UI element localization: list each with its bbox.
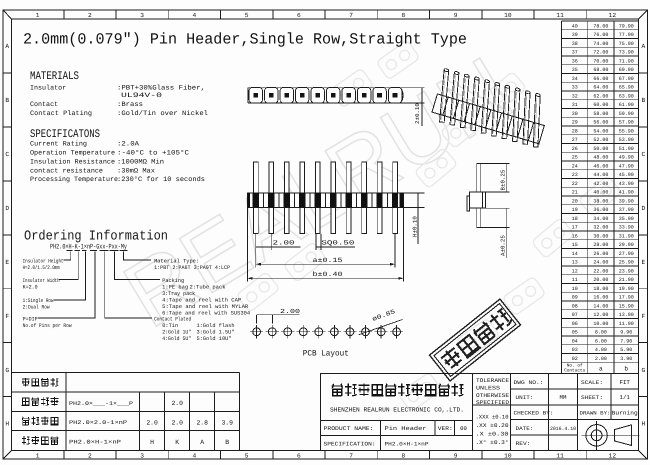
svg-text:6.00: 6.00 [595,338,607,344]
svg-text:SCALE:: SCALE: [581,380,603,386]
svg-text:25.90: 25.90 [619,260,634,266]
svg-text:5:Gold 10U": 5:Gold 10U" [197,336,232,342]
svg-text:6: 6 [297,453,301,460]
svg-text:K=2.0: K=2.0 [23,284,38,290]
svg-text:38: 38 [572,41,578,47]
svg-text:19: 19 [572,207,578,213]
svg-text:49.90: 49.90 [619,155,634,161]
svg-text:36: 36 [572,58,578,64]
svg-text:UNIT:: UNIT: [516,395,534,401]
svg-text:MM: MM [560,394,567,401]
svg-text:17: 17 [572,225,578,231]
svg-text:32: 32 [572,93,578,99]
svg-text:45.90: 45.90 [619,172,634,178]
svg-text:52.00: 52.00 [593,137,608,143]
svg-text:B: B [641,97,645,104]
svg-text:2.00: 2.00 [273,240,295,247]
svg-text:PH2.0×2.0-1×nP: PH2.0×2.0-1×nP [69,419,128,426]
svg-text:76.00: 76.00 [593,32,608,38]
svg-text:1: 1 [36,12,40,19]
svg-text:66.00: 66.00 [593,76,608,82]
svg-text:C: C [641,151,645,158]
svg-text:39.90: 39.90 [619,198,634,204]
svg-text:3.90: 3.90 [620,356,632,362]
svg-text:MATERIALS: MATERIALS [30,70,79,83]
svg-text:21.90: 21.90 [619,277,634,283]
svg-text:9: 9 [454,12,458,19]
svg-text:37: 37 [572,50,578,56]
svg-text:63.90: 63.90 [619,93,634,99]
svg-text:A: A [641,43,645,50]
svg-text:13: 13 [572,260,578,266]
svg-text:48.00: 48.00 [593,155,608,161]
svg-text:2:Gold 1U": 2:Gold 1U" [162,330,191,336]
svg-text:34.00: 34.00 [593,216,608,222]
svg-text:4:Gold 5U": 4:Gold 5U" [162,336,191,342]
svg-text:16: 16 [572,233,578,239]
svg-text:7.90: 7.90 [620,338,632,344]
svg-text:A: A [5,43,9,50]
svg-text:a: a [599,366,603,373]
svg-text:DATE:: DATE: [516,426,534,432]
svg-text:00: 00 [460,425,467,432]
svg-text:Contact: Contact [30,101,58,109]
svg-text:PH2.0×H-1×nP: PH2.0×H-1×nP [69,438,122,445]
svg-text:2.00: 2.00 [280,308,300,315]
svg-text:11: 11 [556,12,564,19]
svg-text:11: 11 [572,277,578,283]
svg-text:38.00: 38.00 [593,198,608,204]
svg-text:SPECIFIED: SPECIFIED [476,399,510,406]
svg-text:22.00: 22.00 [593,268,608,274]
svg-text:contact resistance: contact resistance [30,167,103,175]
svg-text:5: 5 [245,12,249,19]
svg-text:43.90: 43.90 [619,181,634,187]
svg-text:02: 02 [572,356,578,362]
svg-text:FIT: FIT [619,379,630,386]
svg-text:34: 34 [572,76,578,82]
svg-text:0:Tin: 0:Tin [162,323,178,329]
svg-text:1:PBT 2:PA6T 3:PA9T 4:LCP: 1:PBT 2:PA6T 3:PA9T 4:LCP [154,265,230,271]
svg-text:11.90: 11.90 [619,321,634,327]
svg-text:SPECIFICATONS: SPECIFICATONS [30,128,100,141]
svg-text:40.00: 40.00 [593,190,608,196]
svg-text:10: 10 [572,286,578,292]
svg-text:31.90: 31.90 [619,233,634,239]
svg-text:OTHERWISE: OTHERWISE [476,392,510,399]
svg-text:28: 28 [572,128,578,134]
svg-text:UNLESS: UNLESS [476,384,501,391]
svg-text:UL94V-0: UL94V-0 [121,92,162,100]
svg-text:.XXX ±0.10: .XXX ±0.10 [476,413,510,420]
svg-text:08: 08 [572,303,578,309]
svg-text:23: 23 [572,172,578,178]
svg-text:18.00: 18.00 [593,286,608,292]
svg-text:23.90: 23.90 [619,268,634,274]
svg-text:H±0.10: H±0.10 [412,216,419,237]
svg-text:E: E [641,259,645,266]
svg-text:7: 7 [349,453,353,460]
svg-text:8: 8 [402,12,406,19]
svg-text::Gold/Tin over Nickel: :Gold/Tin over Nickel [117,110,208,118]
svg-text:Contact Plating: Contact Plating [30,110,92,118]
svg-text:E: E [5,259,9,266]
svg-text:SPECIFICATION:: SPECIFICATION: [324,440,376,447]
svg-text:75.90: 75.90 [619,41,634,47]
svg-text:44.00: 44.00 [593,172,608,178]
svg-text::2.0A: :2.0A [117,141,140,149]
svg-text:6: 6 [297,12,301,19]
svg-text:20: 20 [572,198,578,204]
svg-text:REV:: REV: [516,441,531,447]
svg-text:14: 14 [572,251,578,257]
svg-text:72.00: 72.00 [593,50,608,56]
svg-text:62.00: 62.00 [593,93,608,99]
svg-text:G: G [5,367,9,374]
svg-text:2.00: 2.00 [595,356,607,362]
svg-text:2.0: 2.0 [146,420,158,427]
svg-text:2.0: 2.0 [171,400,183,407]
svg-text:VER:: VER: [438,425,453,432]
svg-text:12: 12 [609,453,617,460]
svg-text:PH2.0×H-1×nP: PH2.0×H-1×nP [385,441,429,447]
svg-text:40: 40 [572,23,578,29]
svg-text:57.90: 57.90 [619,120,634,126]
svg-text:25: 25 [572,155,578,161]
svg-text:35.90: 35.90 [619,216,634,222]
svg-text:Contacts: Contacts [564,369,585,374]
svg-text:18: 18 [572,216,578,222]
svg-text:No.of Pins per Row: No.of Pins per Row [23,323,73,329]
svg-text:1/1: 1/1 [619,394,630,401]
svg-text:16.00: 16.00 [593,295,608,301]
svg-text:9.90: 9.90 [620,330,632,336]
svg-text:12: 12 [572,268,578,274]
svg-text:5:Tape and reel with MYLAR: 5:Tape and reel with MYLAR [162,304,249,310]
svg-text:D: D [641,205,645,212]
svg-text:3: 3 [140,12,144,19]
svg-text:DWG NO.:: DWG NO.: [514,380,544,386]
svg-text:Burning: Burning [612,410,638,417]
svg-text:8: 8 [402,453,406,460]
svg-text:.XX ±0.20: .XX ±0.20 [476,422,510,429]
svg-text:Processing Temperature: Processing Temperature [30,176,118,184]
svg-text:3.9: 3.9 [221,420,233,427]
svg-text:Current Rating: Current Rating [30,141,87,149]
svg-text:Operation Temperature: Operation Temperature [30,150,115,158]
svg-text:78.00: 78.00 [593,23,608,29]
svg-text:Packing: Packing [162,278,184,284]
svg-text:8.00: 8.00 [595,330,607,336]
svg-text:55.90: 55.90 [619,128,634,134]
svg-text:C: C [5,151,9,158]
svg-text:60.00: 60.00 [593,102,608,108]
svg-text:10: 10 [504,12,512,19]
svg-text:Pin Header: Pin Header [385,425,427,432]
svg-text:61.90: 61.90 [619,102,634,108]
svg-text:1:Gold flash: 1:Gold flash [197,323,235,329]
svg-text:04: 04 [572,338,578,344]
svg-text:26: 26 [572,146,578,152]
svg-text:Ordering Information: Ordering Information [24,230,168,245]
svg-text:32.00: 32.00 [593,225,608,231]
svg-text:56.00: 56.00 [593,120,608,126]
svg-text:46.00: 46.00 [593,163,608,169]
svg-text:15: 15 [572,242,578,248]
svg-text:09: 09 [572,295,578,301]
svg-text:12.00: 12.00 [593,312,608,318]
svg-text:PCB Layout: PCB Layout [303,349,349,358]
svg-text:5: 5 [245,453,249,460]
svg-text:73.90: 73.90 [619,50,634,56]
svg-text:4:Tape and reel with CAP: 4:Tape and reel with CAP [162,297,241,303]
svg-text:17.90: 17.90 [619,295,634,301]
svg-text:2.0: 2.0 [171,420,183,427]
svg-text:SHEET:: SHEET: [581,395,603,401]
svg-text:H: H [150,439,154,446]
svg-text:PH2.0×___-1×___P: PH2.0×___-1×___P [69,400,134,407]
svg-text:53.90: 53.90 [619,137,634,143]
svg-text:33: 33 [572,85,578,91]
svg-text:A±0.25: A±0.25 [499,235,506,256]
svg-text:b±0.40: b±0.40 [313,271,343,278]
svg-text:33.90: 33.90 [619,225,634,231]
svg-text:77.90: 77.90 [619,32,634,38]
svg-text:Contact Plated: Contact Plated [154,317,191,323]
svg-text:b: b [624,366,628,373]
svg-text:54.00: 54.00 [593,128,608,134]
svg-text:4.00: 4.00 [595,347,607,353]
svg-text:2: 2 [88,12,92,19]
svg-text:22: 22 [572,181,578,187]
svg-text:69.90: 69.90 [619,67,634,73]
svg-text:2.0mm(0.079") Pin Header,Singl: 2.0mm(0.079") Pin Header,Single Row,Stra… [23,31,467,49]
svg-text:F: F [5,313,9,320]
svg-text:B: B [225,439,229,446]
svg-text:10.00: 10.00 [593,321,608,327]
svg-text::1000MΩ Min: :1000MΩ Min [117,159,164,167]
svg-text::Brass: :Brass [117,101,143,109]
svg-text:5.90: 5.90 [620,347,632,353]
svg-text:6:Tape and reel with SUS304: 6:Tape and reel with SUS304 [162,310,250,316]
svg-text:42.00: 42.00 [593,181,608,187]
svg-text:.X° ±0.3°: .X° ±0.3° [476,439,509,446]
svg-text:.X ±0.30: .X ±0.30 [476,430,510,437]
svg-text:58.00: 58.00 [593,111,608,117]
svg-text:Material Type:: Material Type: [154,259,199,265]
svg-text:1: 1 [36,453,40,460]
svg-text:Insulation Resistance: Insulation Resistance [30,159,115,167]
svg-text:29: 29 [572,120,578,126]
svg-text:7: 7 [349,12,353,19]
svg-text:28.00: 28.00 [593,242,608,248]
svg-text:B±0.25: B±0.25 [499,169,506,190]
svg-text:2.8: 2.8 [196,420,208,427]
svg-text:03: 03 [572,347,578,353]
svg-text::230°C for 10 seconds: :230°C for 10 seconds [117,176,205,184]
svg-text:G: G [641,367,645,374]
svg-text:39: 39 [572,32,578,38]
svg-text:1:Single Row: 1:Single Row [23,298,55,304]
svg-text:DRAWN BY:: DRAWN BY: [580,411,611,417]
svg-text:29.90: 29.90 [619,242,634,248]
svg-text:47.90: 47.90 [619,163,634,169]
svg-text:F: F [641,313,645,320]
svg-text:79.90: 79.90 [619,23,634,29]
svg-text:a±0.15: a±0.15 [313,257,343,264]
svg-text:2016.4.10: 2016.4.10 [550,426,576,432]
svg-text:3: 3 [140,453,144,460]
svg-text:3:Gold 1.5U": 3:Gold 1.5U" [197,330,235,336]
svg-text:05: 05 [572,330,578,336]
svg-text:06: 06 [572,321,578,327]
svg-text:13.90: 13.90 [619,312,634,318]
svg-text:A: A [200,439,204,446]
svg-text:2:Dual Row: 2:Dual Row [23,305,51,311]
svg-text:07: 07 [572,312,578,318]
svg-text:TOLERANCE: TOLERANCE [476,377,510,384]
svg-text:H=2.0/1.5/2.0mm: H=2.0/1.5/2.0mm [23,265,60,271]
svg-text:1:PE bag: 1:PE bag [162,284,188,290]
svg-text:12: 12 [609,12,617,19]
svg-text:71.90: 71.90 [619,58,634,64]
svg-text:K: K [175,439,179,446]
svg-text:Insulator Height: Insulator Height [23,259,64,265]
svg-text:10: 10 [504,453,512,460]
svg-text:11: 11 [556,453,564,460]
svg-text:D: D [5,205,9,212]
svg-text::30mΩ Max: :30mΩ Max [117,167,155,175]
svg-text:67.90: 67.90 [619,76,634,82]
svg-text:24: 24 [572,163,578,169]
svg-text:24.00: 24.00 [593,260,608,266]
svg-text:15.90: 15.90 [619,303,634,309]
svg-text::-40°C to +105°C: :-40°C to +105°C [117,150,189,158]
svg-text:30.00: 30.00 [593,233,608,239]
svg-text:20.00: 20.00 [593,277,608,283]
svg-text:27.90: 27.90 [619,251,634,257]
svg-text:21: 21 [572,190,578,196]
svg-text:Insulator: Insulator [30,85,66,93]
svg-text:37.90: 37.90 [619,207,634,213]
svg-text:30: 30 [572,111,578,117]
svg-text:SHENZHEN REALRUN ELECTRONIC CO: SHENZHEN REALRUN ELECTRONIC CO,.LTD. [330,407,464,414]
svg-text:36.00: 36.00 [593,207,608,213]
svg-text:51.90: 51.90 [619,146,634,152]
svg-text:2:Tube pack: 2:Tube pack [190,284,226,290]
svg-text:59.90: 59.90 [619,111,634,117]
svg-text:4: 4 [193,12,197,19]
svg-text:19.90: 19.90 [619,286,634,292]
svg-text:65.90: 65.90 [619,85,634,91]
svg-text:B: B [5,97,9,104]
svg-text:41.90: 41.90 [619,190,634,196]
svg-text:H: H [5,421,9,428]
svg-text:4: 4 [193,453,197,460]
svg-text:50.00: 50.00 [593,146,608,152]
svg-text:14.00: 14.00 [593,303,608,309]
svg-text:31: 31 [572,102,578,108]
svg-text:H: H [641,421,645,428]
svg-text:2: 2 [88,453,92,460]
svg-text:26.00: 26.00 [593,251,608,257]
svg-text:P=DIP: P=DIP [23,317,38,323]
svg-text:74.00: 74.00 [593,41,608,47]
svg-text:70.00: 70.00 [593,58,608,64]
svg-text:Insulator Width: Insulator Width [23,278,60,284]
svg-text:9: 9 [454,453,458,460]
svg-text:27: 27 [572,137,578,143]
svg-text:CHECKED BY:: CHECKED BY: [514,411,554,417]
svg-text:68.00: 68.00 [593,67,608,73]
svg-text:SQ0.50: SQ0.50 [321,240,354,247]
svg-text:64.00: 64.00 [593,85,608,91]
svg-text:35: 35 [572,67,578,73]
svg-text:PRODUCT NAME:: PRODUCT NAME: [324,425,374,432]
svg-text:3:Tray pack: 3:Tray pack [162,291,195,297]
svg-text:2±0.10: 2±0.10 [414,103,421,124]
